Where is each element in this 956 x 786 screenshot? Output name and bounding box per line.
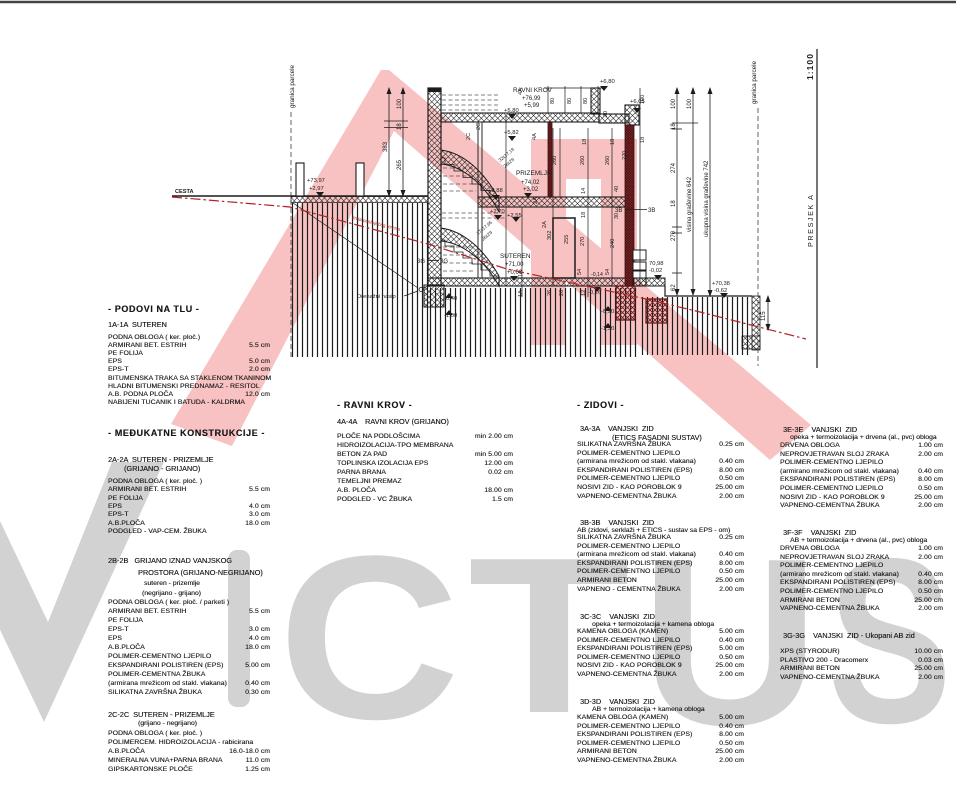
svg-text:260: 260 [552,156,558,165]
svg-text:granica parcele: granica parcele [289,64,296,108]
svg-text:+73,97: +73,97 [307,178,325,184]
svg-text:54: 54 [605,269,611,275]
svg-text:+74,02: +74,02 [521,180,540,186]
svg-text:100: 100 [397,98,403,109]
svg-text:2C: 2C [476,123,482,130]
svg-text:1:100: 1:100 [805,53,815,80]
svg-text:265: 265 [397,159,403,170]
svg-text:PRIZEMLJE: PRIZEMLJE [516,170,551,177]
svg-text:1A: 1A [518,290,524,297]
svg-text:+5,99: +5,99 [524,103,540,109]
svg-text:100: 100 [671,98,677,109]
svg-text:+6,05: +6,05 [630,99,645,105]
svg-text:+5,80: +5,80 [504,108,519,114]
svg-text:18: 18 [610,139,616,145]
svg-text:visina građevine 642: visina građevine 642 [687,176,693,232]
svg-text:115: 115 [761,311,767,321]
svg-text:18: 18 [671,123,677,130]
svg-text:ukupna visina građevine 742: ukupna visina građevine 742 [704,160,710,237]
svg-text:100: 100 [687,98,693,109]
svg-text:18: 18 [671,200,677,207]
svg-text:12: 12 [581,290,587,296]
svg-text:+2,97: +2,97 [309,186,324,192]
svg-text:18: 18 [581,212,587,218]
svg-text:3B: 3B [648,208,655,214]
svg-text:-0,26: -0,26 [588,290,601,296]
svg-text:14: 14 [581,188,587,194]
svg-text:20: 20 [603,111,609,117]
svg-text:+76,99: +76,99 [522,96,541,102]
svg-text:80: 80 [550,98,556,104]
svg-text:PRESJEK A: PRESJEK A [806,193,815,247]
svg-text:2A: 2A [542,221,548,228]
svg-text:270: 270 [580,237,586,246]
svg-text:26: 26 [559,290,565,296]
svg-text:3G: 3G [440,259,448,265]
svg-text:SUTEREN: SUTEREN [500,253,531,260]
svg-text:4A: 4A [532,133,538,140]
svg-text:CESTA: CESTA [175,189,194,195]
svg-text:260: 260 [580,156,586,165]
svg-text:383: 383 [383,141,389,152]
svg-text:255: 255 [564,235,570,244]
svg-text:260: 260 [605,156,611,165]
svg-text:18: 18 [582,139,588,145]
svg-text:RAVNI KROV: RAVNI KROV [513,87,553,94]
svg-text:26: 26 [547,290,553,296]
svg-text:Drenažni nasip: Drenažni nasip [357,294,396,300]
svg-text:-0,02: -0,02 [649,268,662,274]
svg-text:3G: 3G [417,259,425,265]
svg-text:+6,80: +6,80 [600,79,615,85]
svg-text:+2,70: +2,70 [490,209,505,215]
svg-text:220: 220 [622,151,628,160]
svg-text:80: 80 [583,98,589,104]
svg-text:2A: 2A [533,197,539,204]
svg-text:18: 18 [397,123,403,130]
svg-text:+70,38: +70,38 [712,281,730,287]
svg-text:+2,88: +2,88 [488,188,503,194]
svg-text:3B: 3B [615,208,622,214]
svg-text:2C: 2C [466,133,472,140]
svg-text:54: 54 [577,269,583,275]
svg-text:40: 40 [614,186,620,192]
svg-text:80: 80 [567,98,573,104]
svg-text:70,98: 70,98 [649,261,664,267]
svg-text:+5,82: +5,82 [504,130,519,136]
svg-text:270: 270 [671,230,677,241]
svg-text:-0,14: -0,14 [591,272,603,278]
svg-text:240: 240 [610,239,616,248]
svg-text:274: 274 [671,162,677,173]
svg-text:18: 18 [640,137,646,143]
svg-text:302: 302 [547,231,553,240]
svg-text:62: 62 [671,284,677,291]
svg-text:+3,02: +3,02 [523,187,539,193]
svg-text:granica parcele: granica parcele [751,60,758,104]
svg-text:+71,00: +71,00 [505,262,524,268]
